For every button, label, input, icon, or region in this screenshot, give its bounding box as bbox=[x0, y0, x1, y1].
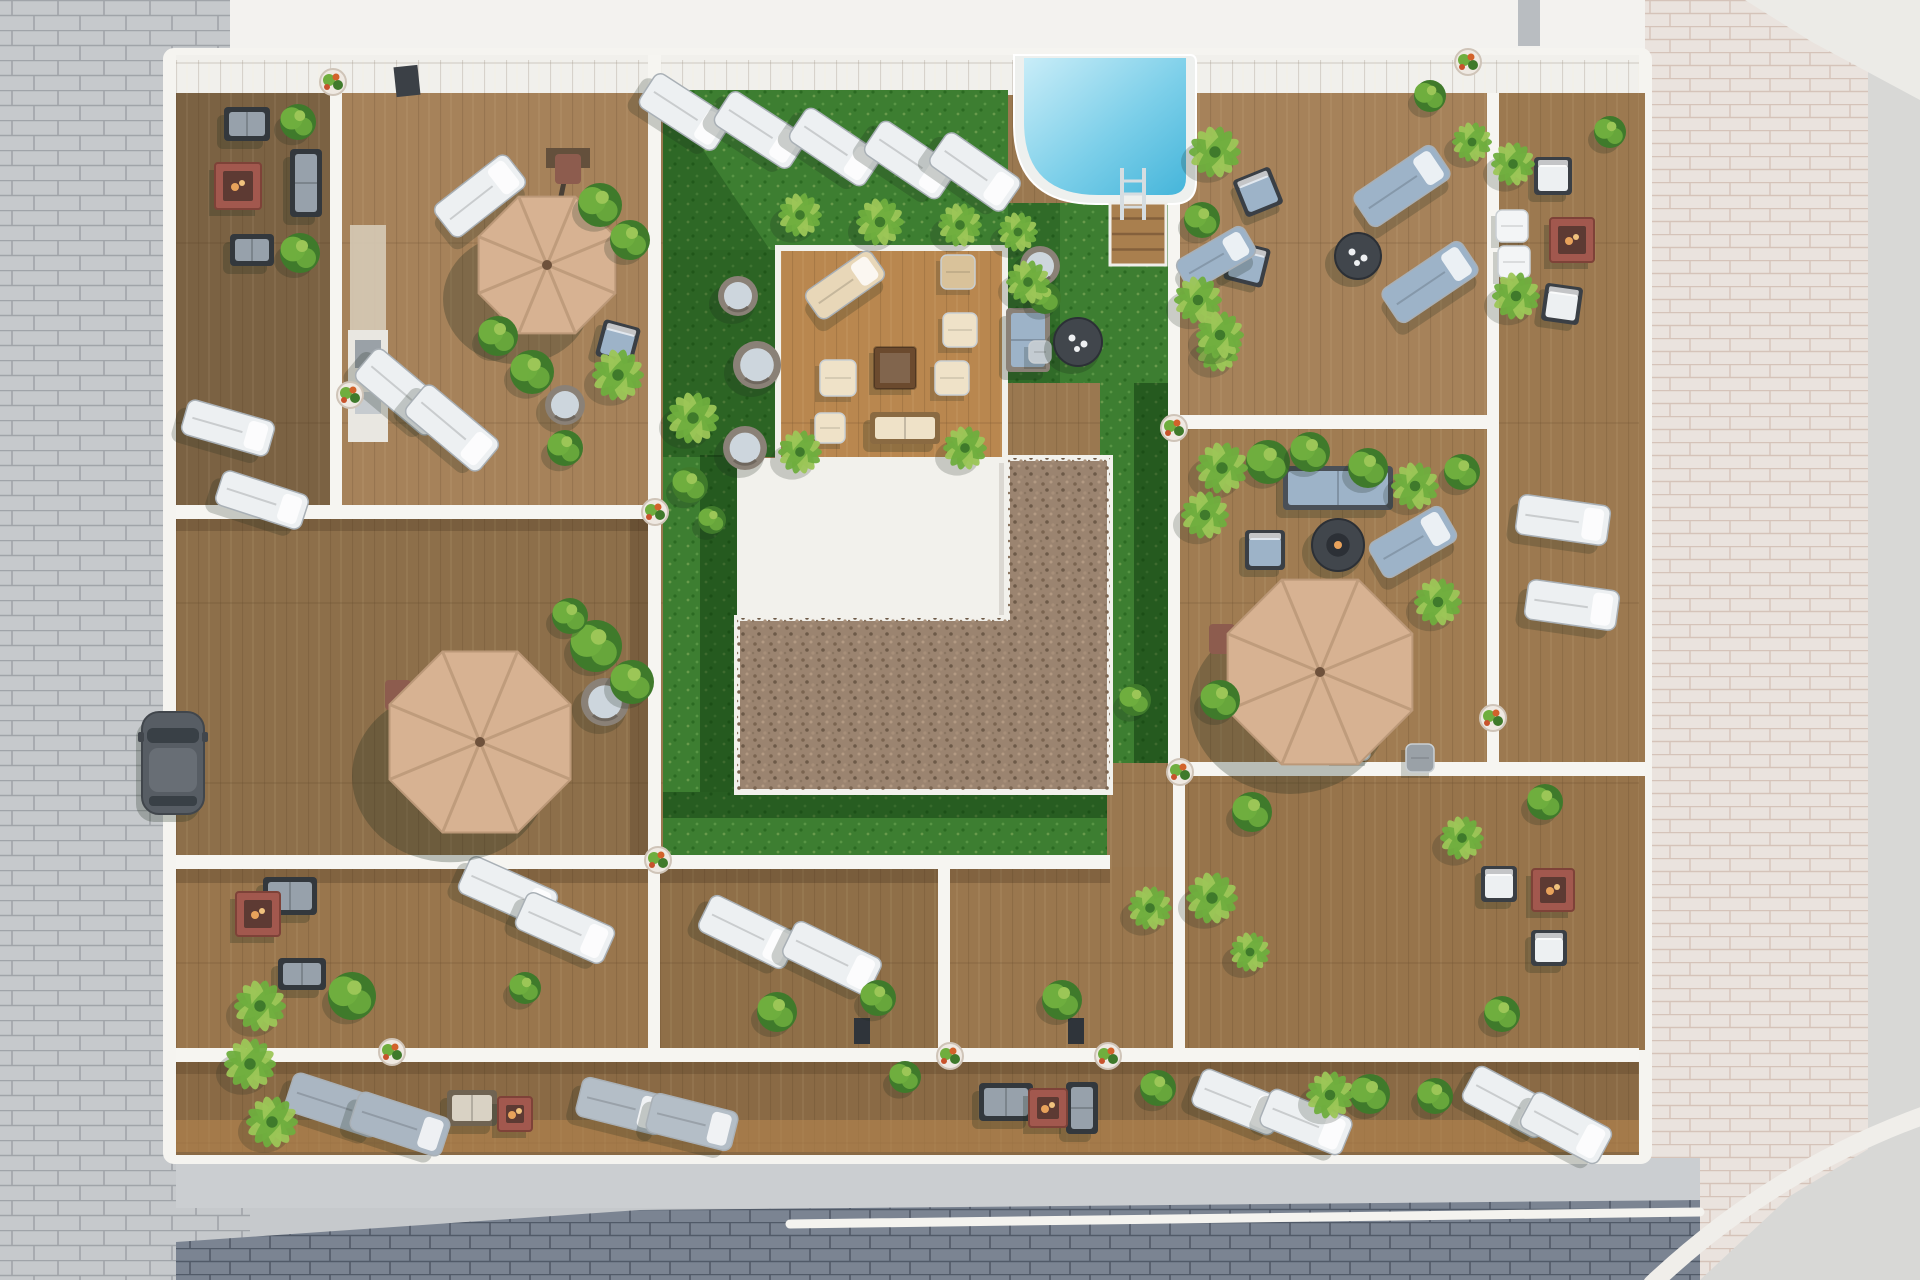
lawn-shade-corridor bbox=[700, 455, 737, 792]
armchair-white bbox=[1525, 930, 1567, 973]
fire-table bbox=[1023, 1089, 1067, 1134]
flower-pot bbox=[1167, 759, 1193, 785]
seat-cushion bbox=[1491, 210, 1528, 248]
divider-wall-v2 bbox=[648, 55, 661, 855]
fire-table bbox=[492, 1097, 532, 1138]
divider-wall-v1 bbox=[330, 93, 342, 505]
far-right-pavement bbox=[1868, 0, 1920, 1280]
fire-table bbox=[1526, 869, 1574, 918]
flower-pot bbox=[645, 847, 671, 873]
divider-wall-v9 bbox=[1487, 93, 1499, 762]
pool-steps bbox=[1110, 203, 1166, 265]
deck-post-1 bbox=[854, 1018, 870, 1044]
right-pink-cobble-texture bbox=[1645, 0, 1875, 1280]
platform-bench bbox=[863, 412, 940, 452]
rooftop-render bbox=[0, 0, 1920, 1280]
roof-vent bbox=[393, 65, 420, 97]
armchair-blue bbox=[1239, 530, 1285, 577]
flower-pot bbox=[379, 1039, 405, 1065]
fire-table bbox=[230, 892, 280, 943]
pool-water bbox=[1024, 58, 1186, 195]
lawn-shade-band bbox=[663, 792, 1107, 818]
sofa bbox=[283, 149, 322, 225]
divider-wall-v6 bbox=[648, 867, 660, 1062]
bottom-sidewalk bbox=[176, 1158, 1700, 1208]
sofa bbox=[223, 234, 274, 274]
flower-pot bbox=[1480, 705, 1506, 731]
armchair-white bbox=[1475, 866, 1517, 909]
seat-cushion bbox=[936, 255, 975, 295]
stair-core-white-roof bbox=[737, 458, 1007, 618]
flower-pot bbox=[320, 69, 346, 95]
seat-cushion bbox=[815, 360, 856, 402]
parked-car bbox=[136, 712, 208, 822]
flower-pot bbox=[1095, 1043, 1121, 1069]
top-pole bbox=[1518, 0, 1540, 46]
aerial-render-canvas bbox=[0, 0, 1920, 1280]
seat-cushion bbox=[930, 361, 969, 401]
flower-pot bbox=[337, 382, 363, 408]
fire-table bbox=[209, 163, 261, 216]
divider-wall-h2 bbox=[1180, 415, 1487, 429]
fire-table bbox=[1544, 218, 1594, 269]
coffee-table bbox=[869, 347, 916, 395]
divider-wall-h3 bbox=[176, 855, 1110, 869]
flower-pot bbox=[1455, 49, 1481, 75]
divider-wall-v7 bbox=[938, 867, 950, 1062]
seat-cushion bbox=[938, 313, 977, 353]
deck-post-2 bbox=[1068, 1018, 1084, 1044]
sofa bbox=[217, 107, 270, 149]
flower-pot bbox=[642, 499, 668, 525]
flower-pot bbox=[1161, 415, 1187, 441]
sofa bbox=[271, 958, 326, 998]
flower-pot bbox=[937, 1043, 963, 1069]
